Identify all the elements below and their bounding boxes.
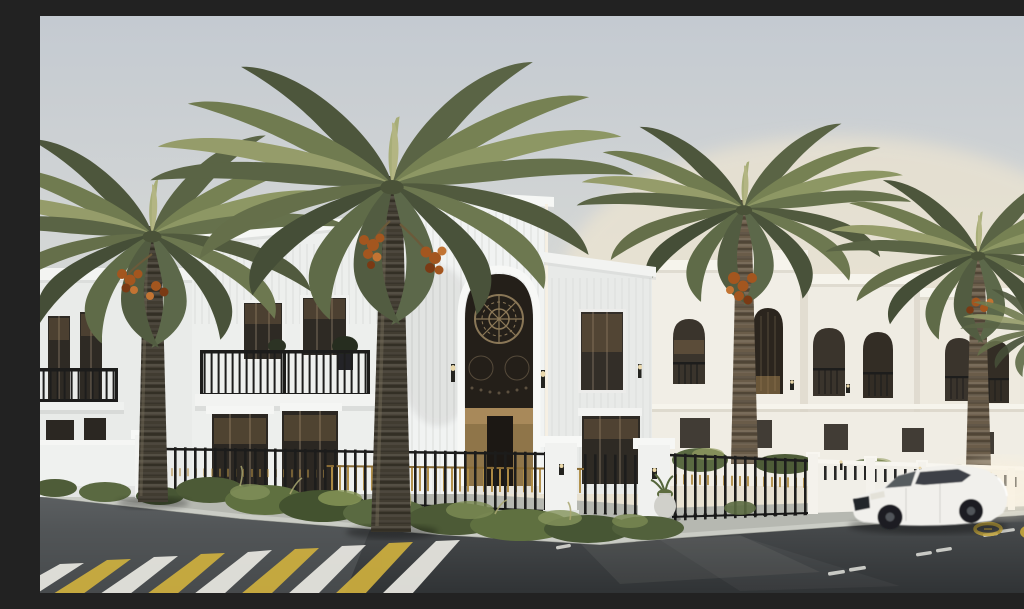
villa-compound-rendering <box>40 16 1024 593</box>
arched-window <box>813 328 845 396</box>
window-upper <box>578 309 626 393</box>
balcony-railing <box>40 368 118 403</box>
wall-sconce <box>451 364 456 382</box>
door-lintel <box>280 403 342 411</box>
window-lintel <box>578 408 642 416</box>
wall-sconce <box>638 364 642 378</box>
iron-fence <box>577 454 638 515</box>
gate-pier <box>540 436 582 518</box>
wall-sconce <box>541 370 546 388</box>
door-lintel <box>206 406 274 414</box>
arched-window <box>863 332 893 398</box>
